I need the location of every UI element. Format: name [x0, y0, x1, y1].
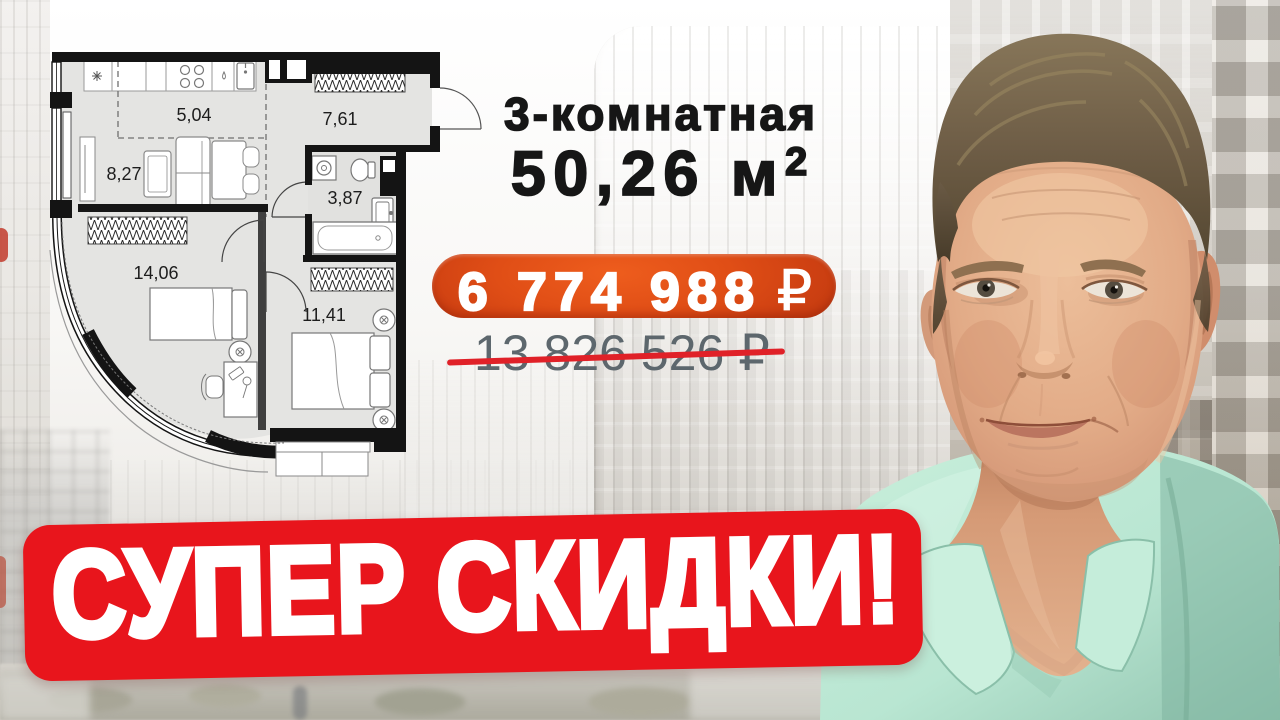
svg-text:11,41: 11,41: [302, 305, 346, 325]
svg-text:14,06: 14,06: [133, 263, 178, 283]
svg-text:5,04: 5,04: [176, 105, 211, 125]
svg-text:8,27: 8,27: [106, 164, 141, 184]
svg-text:3,87: 3,87: [327, 188, 362, 208]
svg-text:7,61: 7,61: [322, 109, 357, 129]
